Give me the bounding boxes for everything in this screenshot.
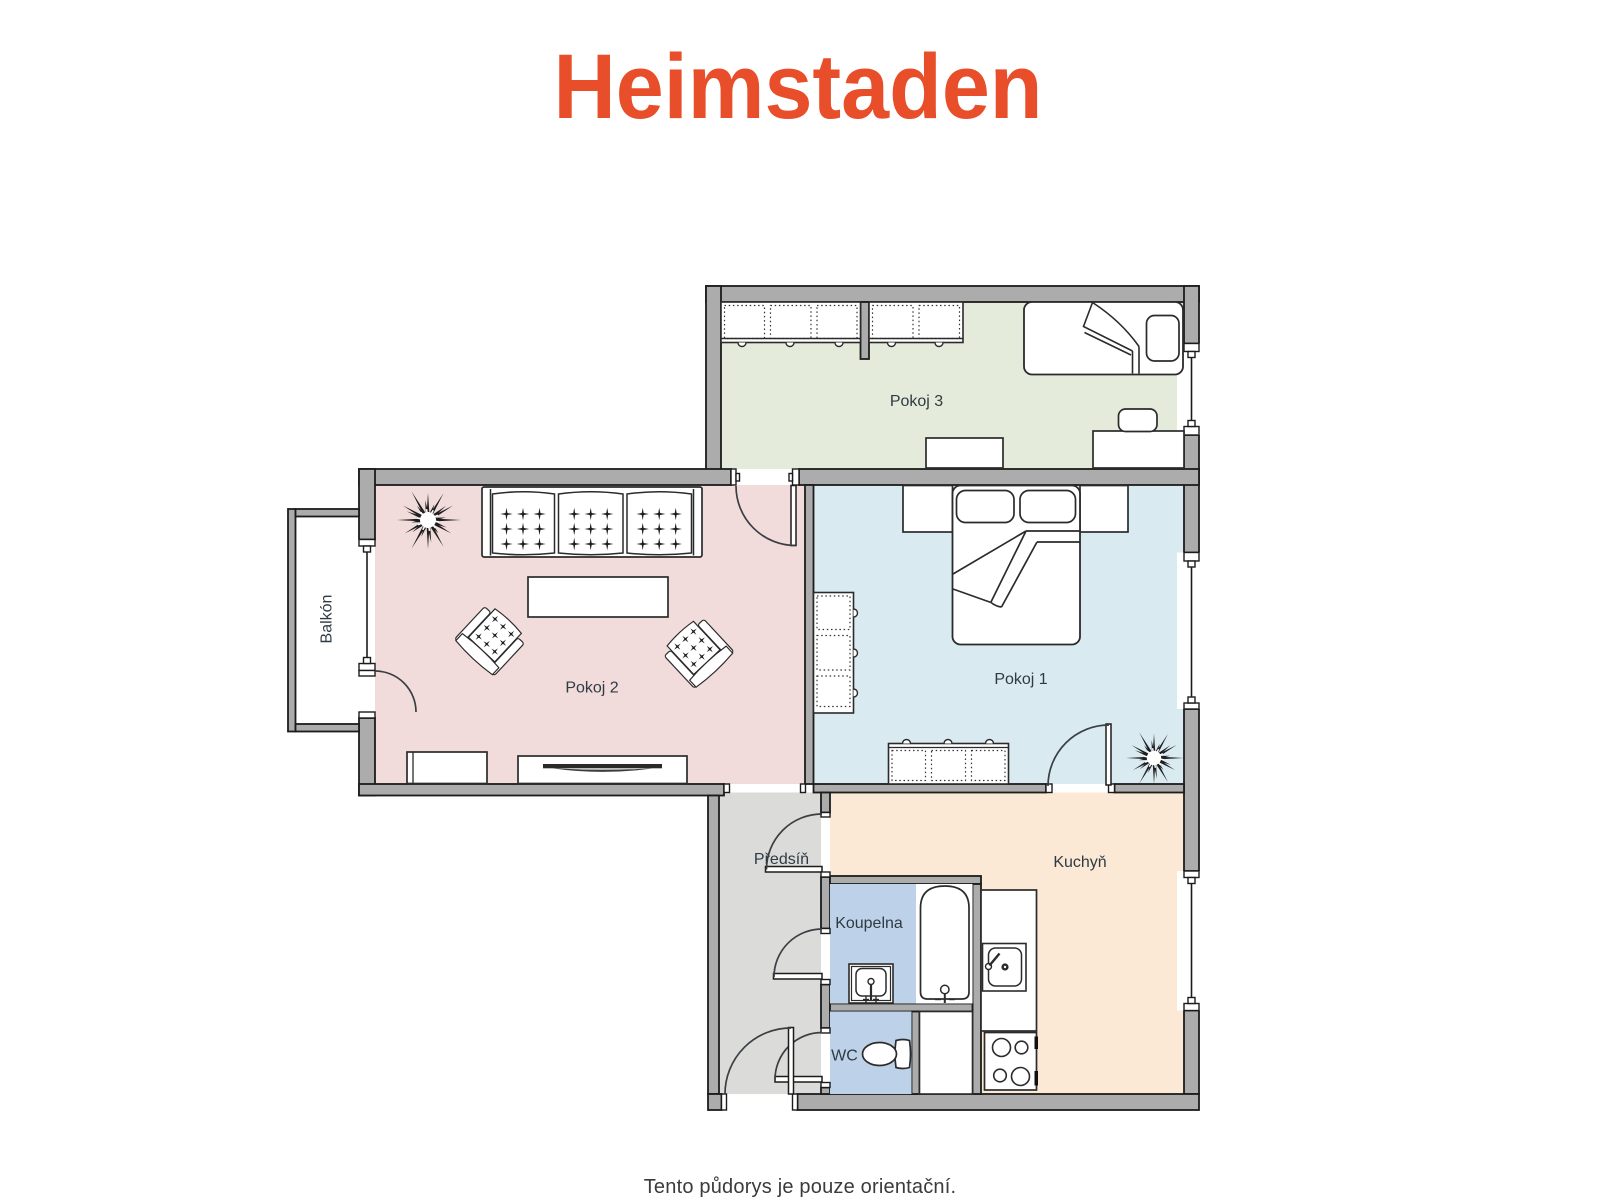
svg-text:Pokoj 1: Pokoj 1	[994, 671, 1047, 688]
svg-text:Koupelna: Koupelna	[835, 915, 903, 932]
svg-text:Pokoj 3: Pokoj 3	[890, 393, 943, 410]
svg-text:Pokoj 2: Pokoj 2	[565, 680, 618, 697]
svg-text:Předsíň: Předsíň	[754, 851, 809, 868]
svg-text:Kuchyň: Kuchyň	[1053, 854, 1106, 871]
svg-text:WC: WC	[831, 1048, 858, 1065]
svg-text:Tento půdorys je pouze orienta: Tento půdorys je pouze orientační.	[644, 1176, 957, 1198]
svg-text:Heimstaden: Heimstaden	[554, 36, 1043, 138]
svg-text:Balkón: Balkón	[319, 595, 336, 644]
